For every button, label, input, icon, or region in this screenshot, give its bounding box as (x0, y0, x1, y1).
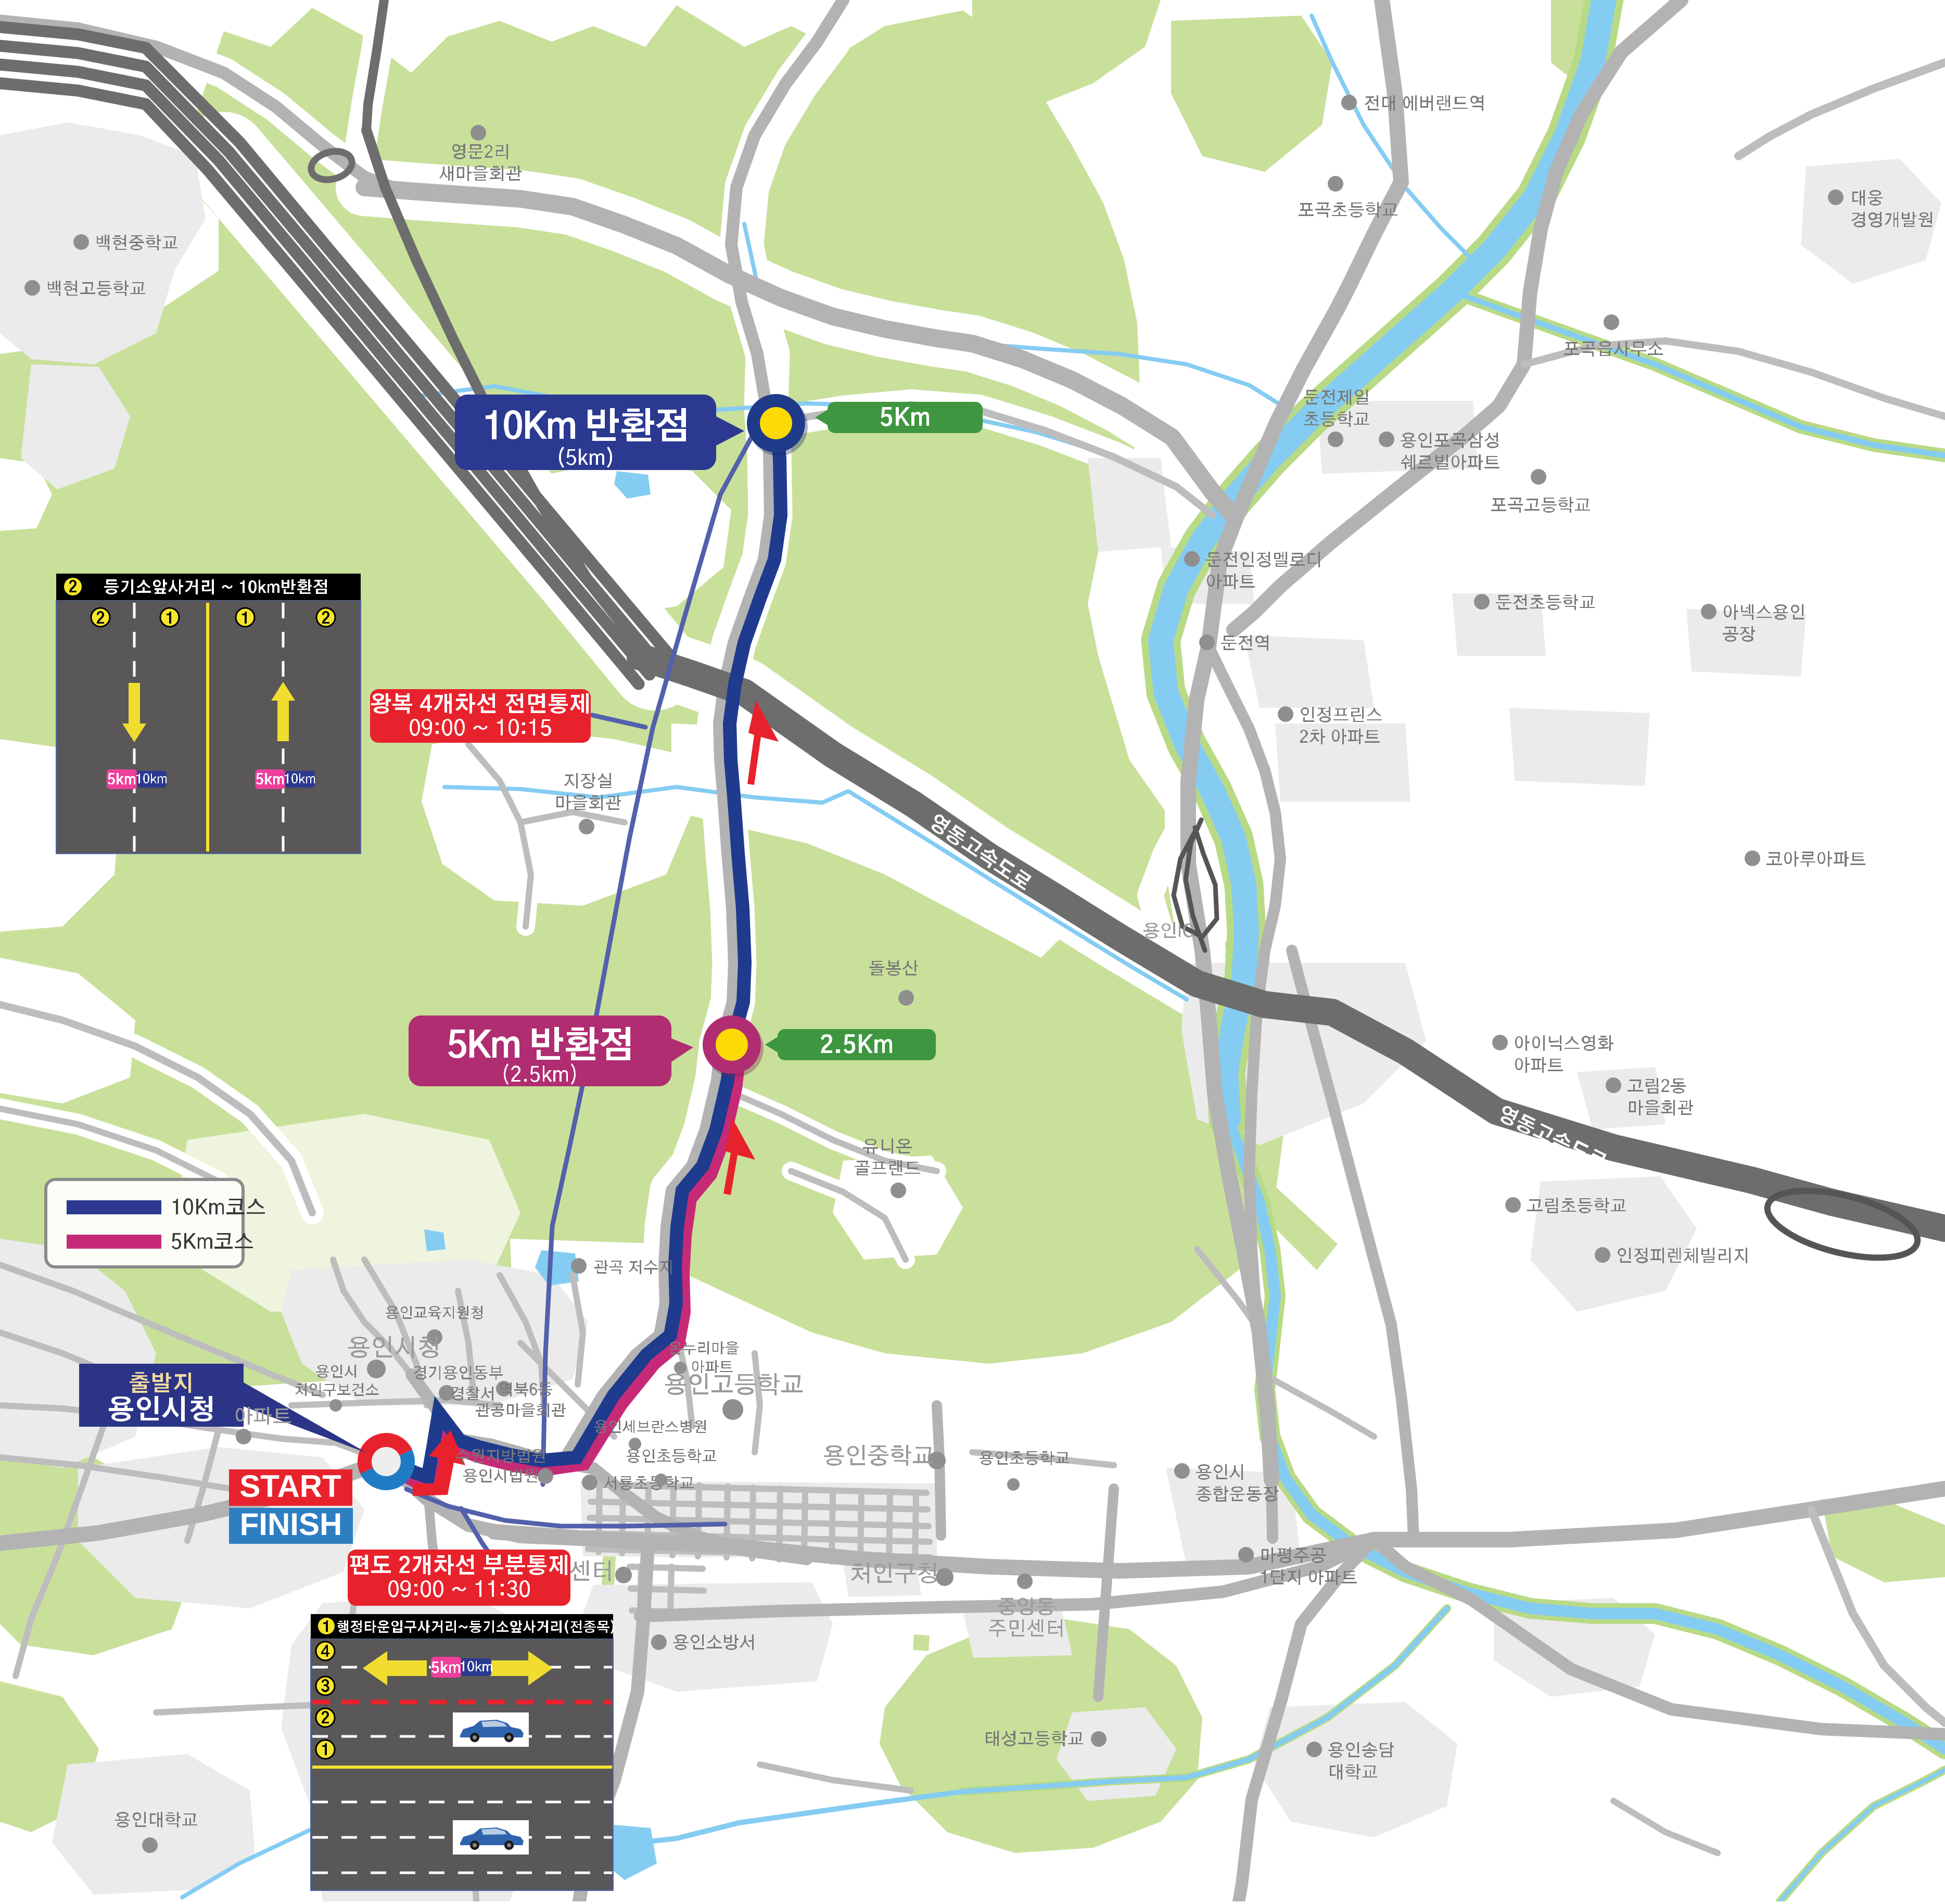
svg-text:START: START (239, 1469, 341, 1504)
svg-text:FINISH: FINISH (240, 1507, 342, 1542)
